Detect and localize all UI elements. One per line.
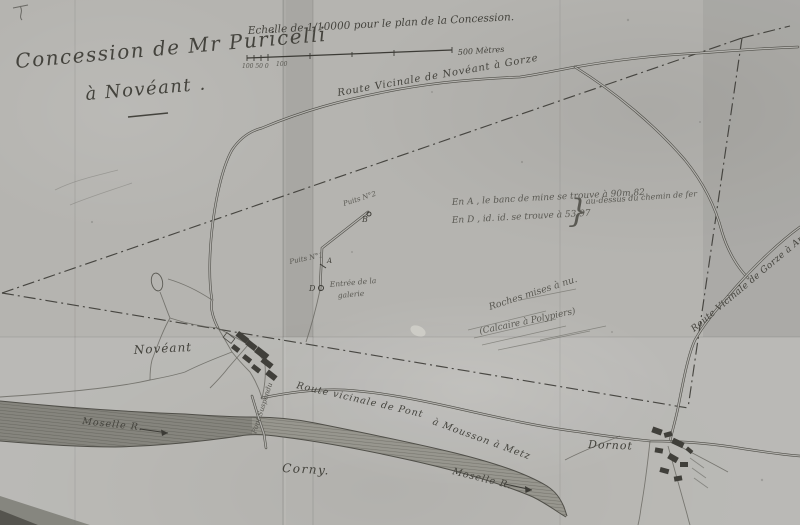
- scanned-map-document: Concession de Mr Puricelli à Novéant . E…: [0, 0, 800, 525]
- boundary-north: [2, 38, 742, 293]
- label-road-noveant-gorze: Route Vicinale de Novéant à Gorze: [336, 53, 540, 99]
- lane-to-pond: [168, 279, 212, 300]
- page-title-line2: à Novéant .: [85, 73, 208, 104]
- label-point-a: A: [326, 257, 332, 265]
- geology-line1: Roches mises à nu.: [487, 274, 579, 313]
- label-point-b: B: [361, 215, 368, 224]
- scale-tick-mid-label: 100: [276, 61, 288, 68]
- corner-mark: [13, 5, 28, 20]
- label-galerie-2: galerie: [337, 289, 365, 300]
- scale-right-label: 500 Mètres: [458, 45, 505, 57]
- pond-enclosure: [150, 272, 165, 292]
- contour-squiggles: [55, 170, 132, 205]
- label-puits2: Puits N°2: [341, 190, 377, 209]
- scale-ticks-left-label: 100 50 0: [242, 63, 269, 70]
- label-corny: Corny.: [282, 461, 331, 477]
- lane-pond-village: [160, 292, 170, 318]
- title-underline: [128, 113, 168, 117]
- label-point-d: D: [308, 284, 316, 293]
- map-canvas: Concession de Mr Puricelli à Novéant . E…: [0, 0, 800, 525]
- label-galerie-1: Entrée de la: [328, 276, 376, 289]
- label-dornot: Dornot: [587, 438, 633, 453]
